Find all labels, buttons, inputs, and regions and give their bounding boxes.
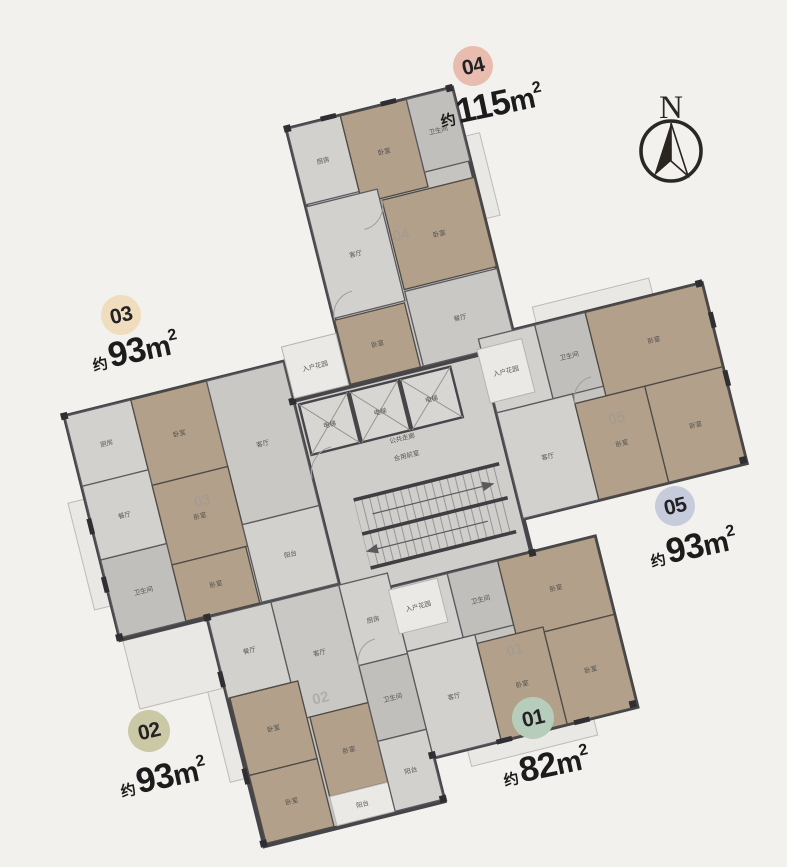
unit-badge-02: 02 bbox=[124, 706, 174, 756]
area-label-unit-05: 约93m2 bbox=[646, 518, 741, 575]
svg-text:约93m2: 约93m2 bbox=[646, 518, 741, 575]
floor-plan-canvas: 厨房卧室卫生间卧室客厅卧室餐厅厨房卧室客厅餐厅卧室卫生间卧室阳台厨房卫生间卧室客… bbox=[0, 0, 787, 867]
north-arrow-icon bbox=[671, 123, 688, 176]
area-label-unit-02: 约93m2 bbox=[116, 748, 211, 805]
svg-text:约93m2: 约93m2 bbox=[88, 322, 183, 379]
north-compass: N bbox=[641, 90, 701, 181]
north-arrow-icon bbox=[654, 123, 671, 176]
area-label-unit-03: 约93m2 bbox=[88, 322, 183, 379]
svg-text:约93m2: 约93m2 bbox=[116, 748, 211, 805]
unit-badge-04: 04 bbox=[449, 42, 497, 90]
floor-plan-page: 厨房卧室卫生间卧室客厅卧室餐厅厨房卧室客厅餐厅卧室卫生间卧室阳台厨房卫生间卧室客… bbox=[0, 0, 787, 867]
unit-badge-05: 05 bbox=[651, 482, 699, 530]
